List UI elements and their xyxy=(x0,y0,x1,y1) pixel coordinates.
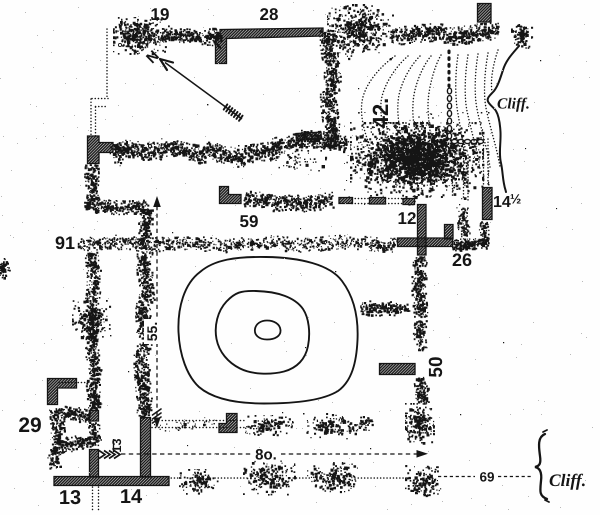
svg-text:28: 28 xyxy=(260,5,279,24)
svg-text:91: 91 xyxy=(55,233,75,253)
svg-text:29: 29 xyxy=(18,414,41,437)
svg-text:19: 19 xyxy=(151,5,170,24)
svg-text:42.: 42. xyxy=(368,98,393,129)
svg-text:8o.: 8o. xyxy=(255,447,277,464)
svg-text:14: 14 xyxy=(493,194,511,211)
svg-text:13: 13 xyxy=(59,487,81,509)
svg-text:50: 50 xyxy=(426,356,447,377)
svg-text:59: 59 xyxy=(240,212,259,231)
svg-text:Cliff.: Cliff. xyxy=(497,96,530,113)
svg-text:55.: 55. xyxy=(144,322,160,341)
svg-text:½: ½ xyxy=(510,192,521,207)
svg-text:13: 13 xyxy=(110,439,124,453)
svg-text:Cliff.: Cliff. xyxy=(549,470,586,490)
svg-text:12: 12 xyxy=(398,209,417,228)
svg-text:69: 69 xyxy=(479,470,494,485)
